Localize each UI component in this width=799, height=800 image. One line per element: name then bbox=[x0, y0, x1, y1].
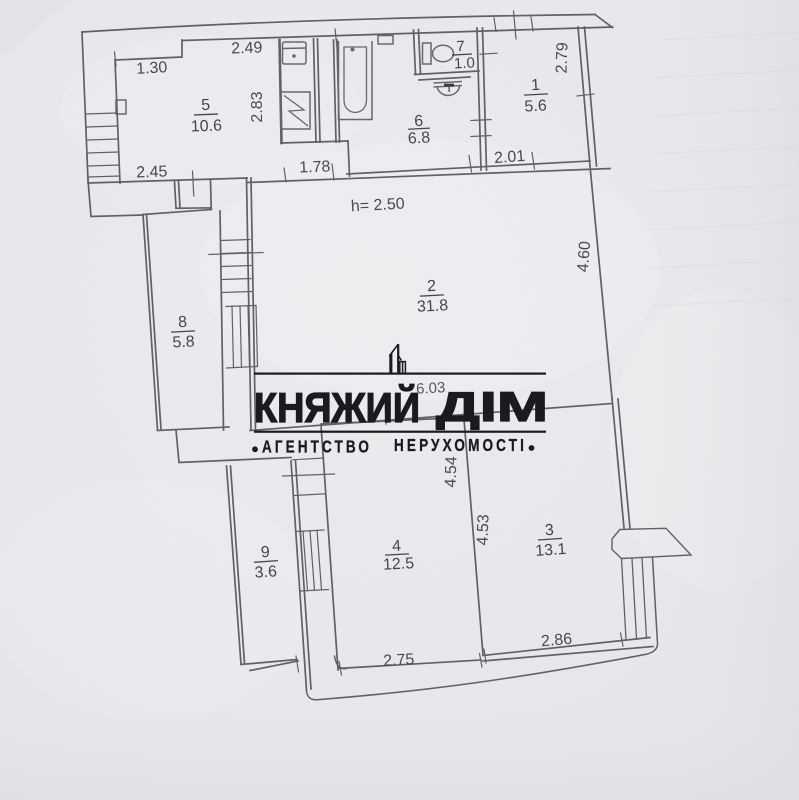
svg-text:4.54: 4.54 bbox=[442, 456, 460, 488]
svg-text:5.6: 5.6 bbox=[524, 97, 547, 115]
svg-text:6.8: 6.8 bbox=[407, 129, 430, 147]
svg-text:2.75: 2.75 bbox=[383, 651, 415, 670]
svg-text:3: 3 bbox=[544, 522, 554, 540]
svg-text:31.8: 31.8 bbox=[417, 297, 449, 316]
svg-text:2.79: 2.79 bbox=[553, 42, 571, 74]
svg-text:АГЕНТСТВО: АГЕНТСТВО bbox=[262, 437, 372, 457]
svg-text:4.60: 4.60 bbox=[575, 240, 594, 272]
svg-text:5: 5 bbox=[201, 97, 211, 114]
svg-text:НЕРУХОМОСТІ: НЕРУХОМОСТІ bbox=[394, 435, 527, 455]
svg-text:ДІМ: ДІМ bbox=[436, 383, 548, 430]
svg-text:2.45: 2.45 bbox=[136, 163, 168, 181]
svg-text:4.53: 4.53 bbox=[474, 514, 492, 546]
svg-text:1: 1 bbox=[531, 77, 541, 94]
svg-text:2.83: 2.83 bbox=[249, 91, 266, 122]
svg-text:КНЯЖИЙ: КНЯЖИЙ bbox=[254, 383, 420, 431]
svg-text:8: 8 bbox=[178, 314, 188, 331]
svg-text:1.30: 1.30 bbox=[136, 59, 168, 78]
svg-text:2: 2 bbox=[427, 278, 437, 295]
svg-text:7: 7 bbox=[456, 38, 465, 55]
svg-text:12.5: 12.5 bbox=[383, 555, 415, 574]
svg-text:1.0: 1.0 bbox=[454, 54, 476, 72]
svg-text:6: 6 bbox=[414, 113, 424, 130]
svg-text:2.86: 2.86 bbox=[540, 631, 573, 651]
svg-text:13.1: 13.1 bbox=[535, 541, 567, 560]
svg-text:5.8: 5.8 bbox=[172, 333, 195, 351]
svg-text:1.78: 1.78 bbox=[299, 158, 331, 176]
svg-text:4: 4 bbox=[392, 538, 402, 555]
svg-text:3.6: 3.6 bbox=[254, 563, 277, 582]
svg-text:2.01: 2.01 bbox=[494, 148, 526, 167]
svg-text:10.6: 10.6 bbox=[191, 117, 223, 135]
svg-text:9: 9 bbox=[260, 544, 270, 562]
svg-text:2.49: 2.49 bbox=[231, 39, 263, 57]
svg-text:h= 2.50: h= 2.50 bbox=[350, 196, 405, 216]
